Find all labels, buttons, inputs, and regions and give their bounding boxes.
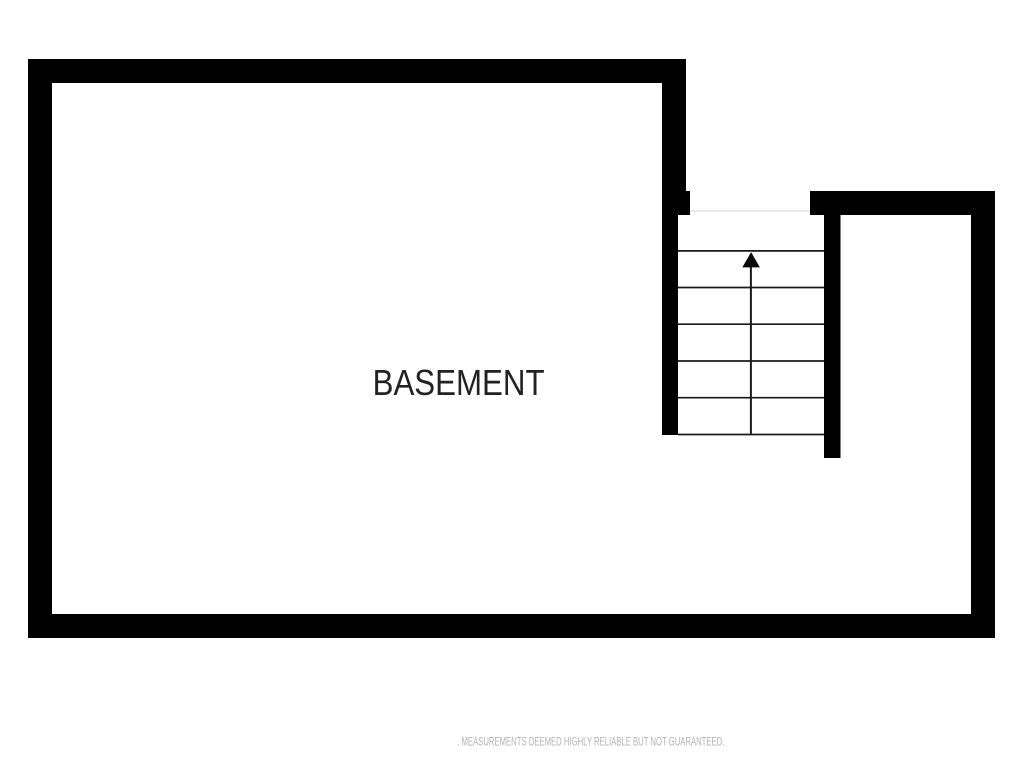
svg-text:. MEASUREMENTS DEEMED HIGHLY R: . MEASUREMENTS DEEMED HIGHLY RELIABLE BU… <box>457 735 724 748</box>
svg-text:BASEMENT: BASEMENT <box>373 362 545 403</box>
